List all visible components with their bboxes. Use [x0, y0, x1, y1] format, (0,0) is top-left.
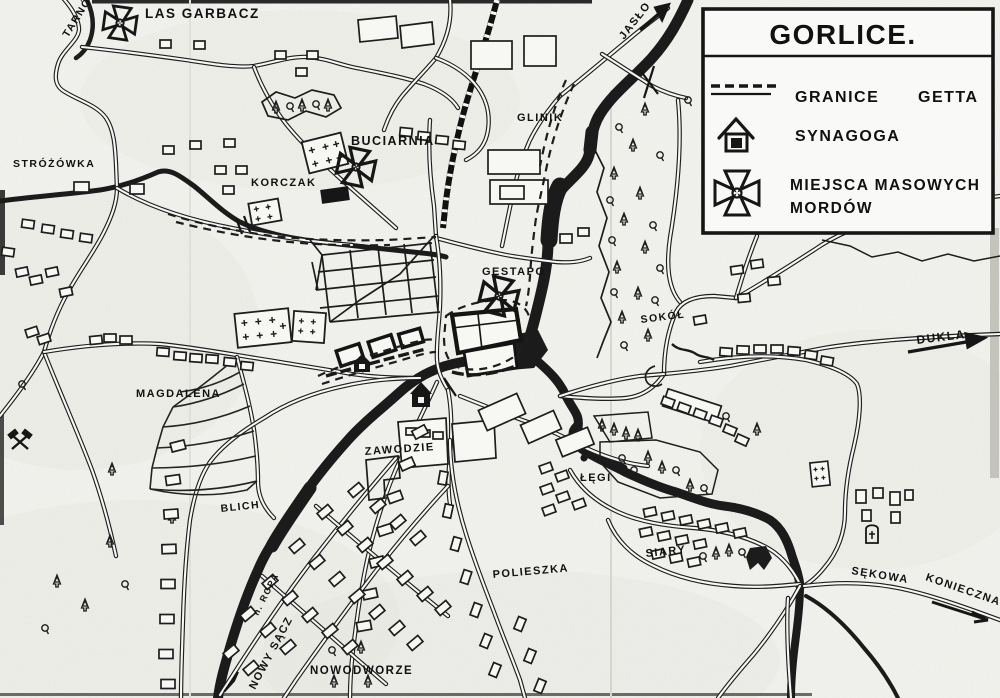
- svg-text:BUCIARNIA: BUCIARNIA: [351, 134, 435, 148]
- svg-text:STRÓŻÓWKA: STRÓŻÓWKA: [13, 157, 95, 170]
- svg-text:GETTA: GETTA: [918, 89, 979, 106]
- svg-text:GORLICE.: GORLICE.: [769, 19, 916, 50]
- svg-text:GRANICE: GRANICE: [795, 89, 879, 106]
- svg-text:MIEJSCA MASOWYCH: MIEJSCA MASOWYCH: [790, 177, 981, 194]
- svg-text:ŁĘGI: ŁĘGI: [580, 472, 612, 484]
- svg-text:NOWODWORZE: NOWODWORZE: [310, 665, 413, 677]
- svg-text:MAGDALENA: MAGDALENA: [136, 388, 221, 400]
- svg-text:MORDÓW: MORDÓW: [790, 199, 873, 217]
- svg-text:GLINIK: GLINIK: [517, 112, 563, 124]
- svg-text:LAS GARBACZ: LAS GARBACZ: [145, 6, 260, 21]
- svg-text:GESTAPO: GESTAPO: [482, 266, 545, 278]
- svg-text:KORCZAK: KORCZAK: [251, 177, 317, 189]
- svg-text:SYNAGOGA: SYNAGOGA: [795, 128, 900, 145]
